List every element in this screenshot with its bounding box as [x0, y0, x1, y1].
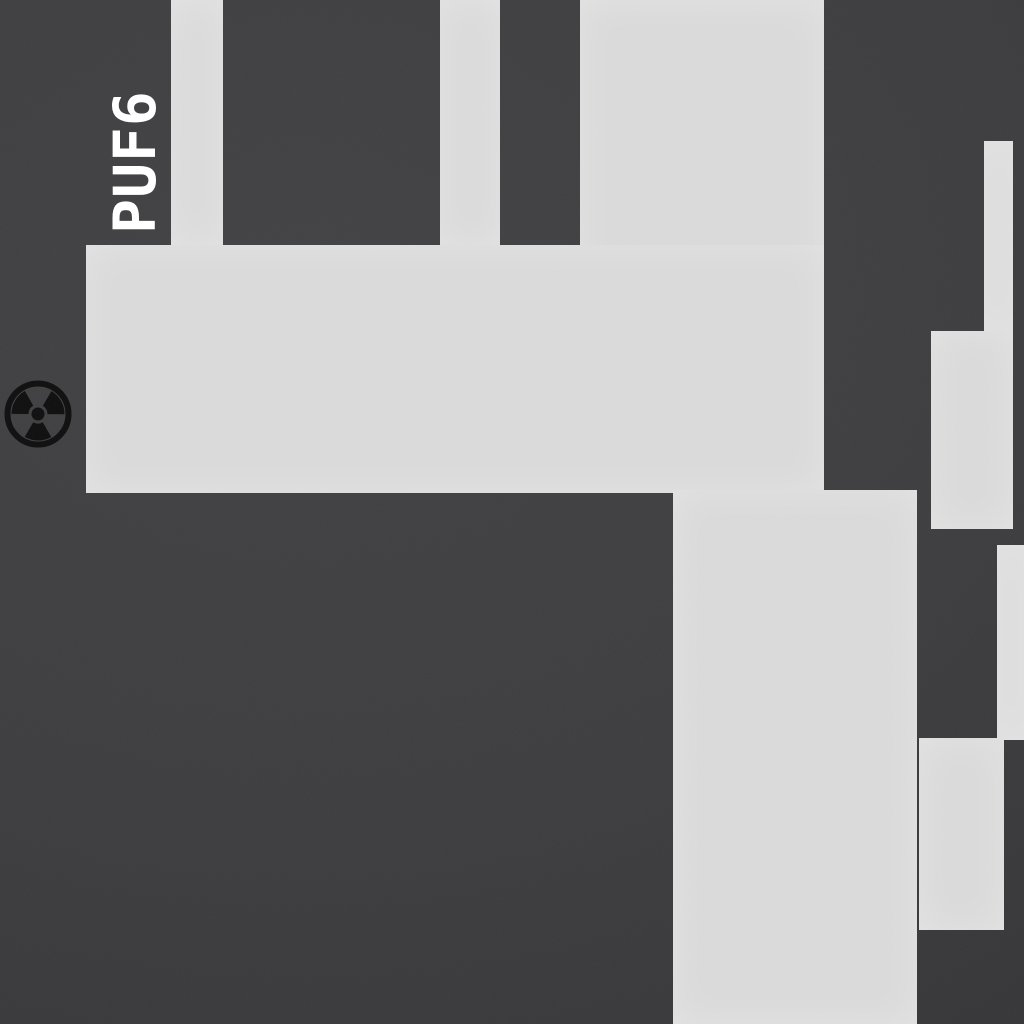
floor-room-right-lower: [919, 738, 1004, 930]
floor-column-lower: [673, 490, 917, 1024]
game-viewport[interactable]: PUF6: [0, 0, 1024, 1024]
floor-corridor-top-mid: [440, 0, 500, 246]
floor-corridor-right-edge: [997, 545, 1024, 740]
floor-corridor-right: [984, 141, 1013, 332]
room-label: PUF6: [110, 77, 160, 247]
floor-corridor-top-left: [171, 0, 223, 246]
radiation-icon: [2, 378, 74, 450]
floor-room-right-upper: [931, 331, 1013, 529]
floor-hall-band: [86, 245, 824, 493]
radiation-icon-glyph: [2, 378, 74, 450]
